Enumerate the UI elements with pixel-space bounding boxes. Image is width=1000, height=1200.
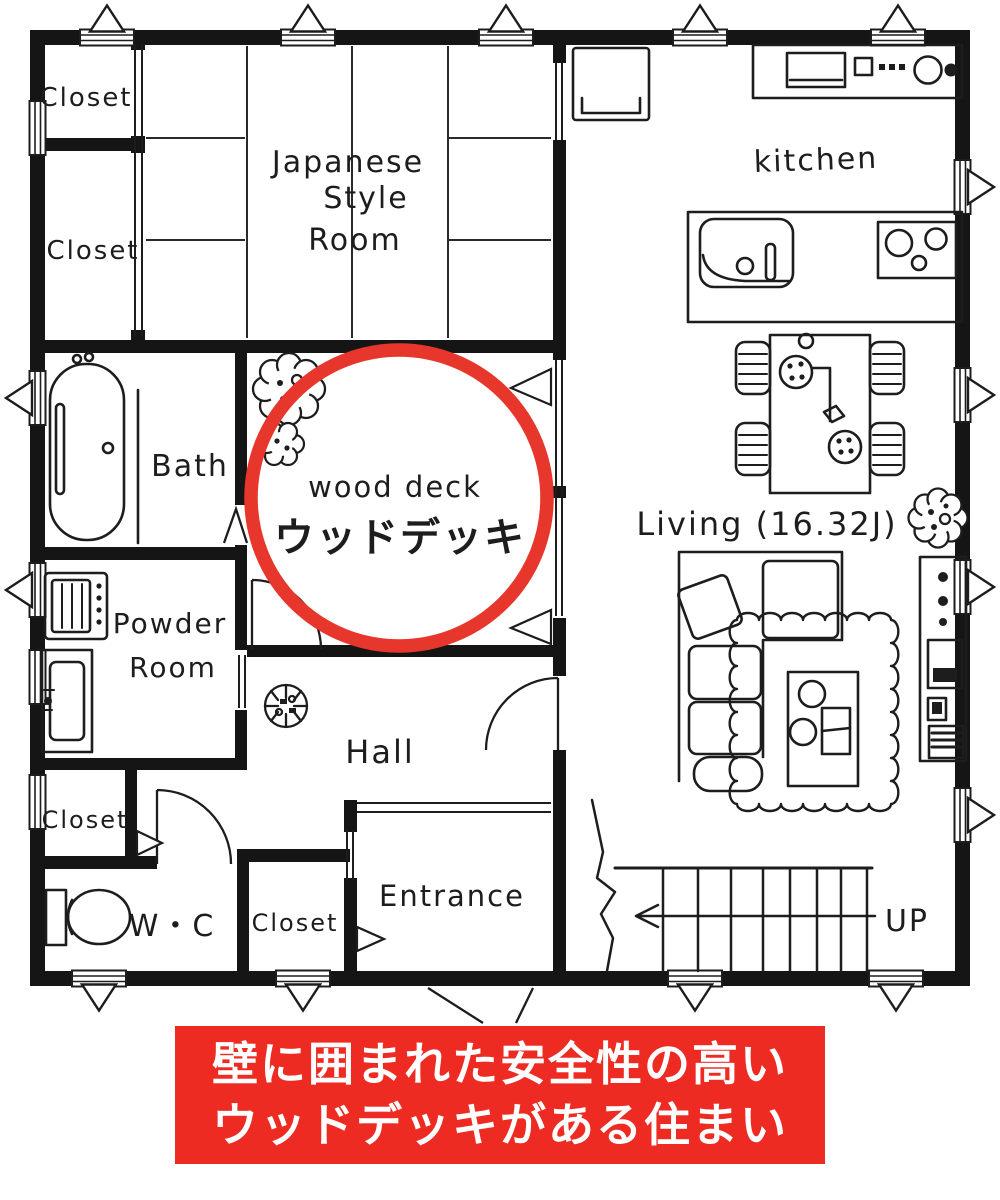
label-closet-entrance: Closet bbox=[252, 909, 339, 937]
powder-sink bbox=[42, 650, 92, 752]
label-japanese-room-3: Room bbox=[308, 223, 401, 258]
label-wood-deck-en: wood deck bbox=[308, 470, 482, 504]
stairs bbox=[592, 800, 875, 971]
label-hall: Hall bbox=[345, 733, 414, 771]
deck-tree-large bbox=[253, 353, 325, 425]
living-plant bbox=[909, 489, 968, 548]
label-powder-room-1: Powder bbox=[113, 607, 227, 640]
label-powder-room-2: Room bbox=[129, 651, 217, 684]
caption-banner: 壁に囲まれた安全性の高い ウッドデッキがある住まい bbox=[175, 1026, 825, 1164]
label-closet-nw-top: Closet bbox=[39, 83, 132, 113]
coffee-table bbox=[788, 672, 858, 786]
kitchen-counter bbox=[753, 45, 962, 98]
stairs-up-arrow bbox=[636, 905, 875, 927]
label-living: Living (16.32J) bbox=[636, 505, 897, 543]
dining-table bbox=[736, 334, 904, 493]
label-kitchen: kitchen bbox=[753, 141, 879, 180]
hall-plant bbox=[265, 685, 307, 727]
bathtub bbox=[50, 353, 138, 543]
label-wood-deck-ja: ウッドデッキ bbox=[274, 515, 526, 561]
floor-plan: Closet Closet Japanese Style Room kitche… bbox=[0, 0, 1000, 1200]
label-closet-nw-bottom: Closet bbox=[46, 236, 139, 266]
washing-machine bbox=[45, 573, 107, 639]
label-bath: Bath bbox=[151, 449, 229, 484]
caption-line-1: 壁に囲まれた安全性の高い bbox=[212, 1037, 788, 1092]
label-wc: W・C bbox=[129, 909, 216, 944]
label-japanese-room-1: Japanese bbox=[270, 145, 424, 180]
label-stairs-up: UP bbox=[885, 904, 929, 939]
toilet bbox=[46, 890, 130, 945]
refrigerator bbox=[573, 48, 649, 120]
kitchen-island bbox=[688, 212, 962, 322]
label-entrance: Entrance bbox=[379, 879, 525, 913]
label-japanese-room-2: Style bbox=[323, 181, 408, 216]
label-closet-west: Closet bbox=[42, 806, 129, 834]
caption-line-2: ウッドデッキがある住まい bbox=[212, 1098, 788, 1153]
rug bbox=[730, 613, 899, 811]
floor-plan-drawing: Closet Closet Japanese Style Room kitche… bbox=[0, 0, 1000, 1200]
